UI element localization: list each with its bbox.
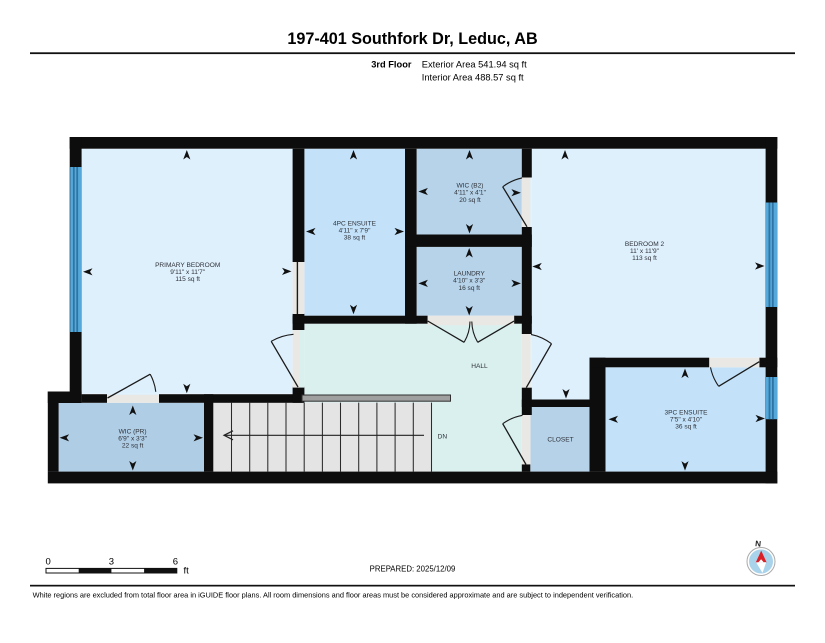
svg-text:9'11" x 11'7": 9'11" x 11'7" [170, 269, 206, 276]
svg-text:6'9" x 3'3": 6'9" x 3'3" [118, 436, 147, 443]
svg-text:16 sq ft: 16 sq ft [458, 285, 480, 292]
svg-text:DN: DN [438, 433, 448, 440]
svg-text:ft: ft [184, 566, 190, 577]
svg-text:4'11" x 4'1": 4'11" x 4'1" [454, 190, 486, 197]
svg-text:4'10" x 3'3": 4'10" x 3'3" [453, 278, 486, 285]
svg-text:11' x 11'9": 11' x 11'9" [630, 248, 660, 255]
svg-text:WIC (B2): WIC (B2) [457, 183, 484, 190]
svg-text:4'11" x 7'9": 4'11" x 7'9" [339, 228, 371, 235]
svg-text:Interior Area 488.57 sq ft: Interior Area 488.57 sq ft [422, 73, 524, 83]
svg-text:3: 3 [109, 556, 114, 567]
svg-text:Exterior Area 541.94 sq ft: Exterior Area 541.94 sq ft [422, 59, 527, 69]
svg-text:PREPARED: 2025/12/09: PREPARED: 2025/12/09 [370, 565, 456, 574]
svg-text:White regions are excluded fro: White regions are excluded from total fl… [33, 590, 634, 599]
svg-text:115 sq ft: 115 sq ft [175, 276, 200, 283]
svg-text:HALL: HALL [471, 363, 488, 370]
svg-text:3PC ENSUITE: 3PC ENSUITE [665, 410, 709, 417]
svg-text:PRIMARY BEDROOM: PRIMARY BEDROOM [155, 262, 220, 269]
svg-text:38 sq ft: 38 sq ft [344, 235, 366, 242]
svg-text:36 sq ft: 36 sq ft [675, 424, 697, 431]
svg-text:22 sq ft: 22 sq ft [122, 443, 144, 450]
svg-text:CLOSET: CLOSET [547, 437, 573, 444]
svg-text:4PC ENSUITE: 4PC ENSUITE [333, 221, 377, 228]
svg-text:N: N [755, 539, 762, 549]
svg-text:BEDROOM 2: BEDROOM 2 [625, 241, 665, 248]
svg-text:0: 0 [46, 556, 51, 567]
svg-text:3rd Floor: 3rd Floor [371, 59, 412, 69]
svg-text:WIC (PR): WIC (PR) [119, 429, 147, 436]
svg-text:7'5" x 4'10": 7'5" x 4'10" [670, 417, 703, 424]
svg-text:197-401 Southfork Dr, Leduc, A: 197-401 Southfork Dr, Leduc, AB [287, 30, 537, 48]
svg-text:113 sq ft: 113 sq ft [632, 255, 657, 262]
svg-text:20 sq ft: 20 sq ft [459, 197, 481, 204]
svg-text:6: 6 [173, 556, 178, 567]
svg-text:LAUNDRY: LAUNDRY [454, 270, 486, 277]
